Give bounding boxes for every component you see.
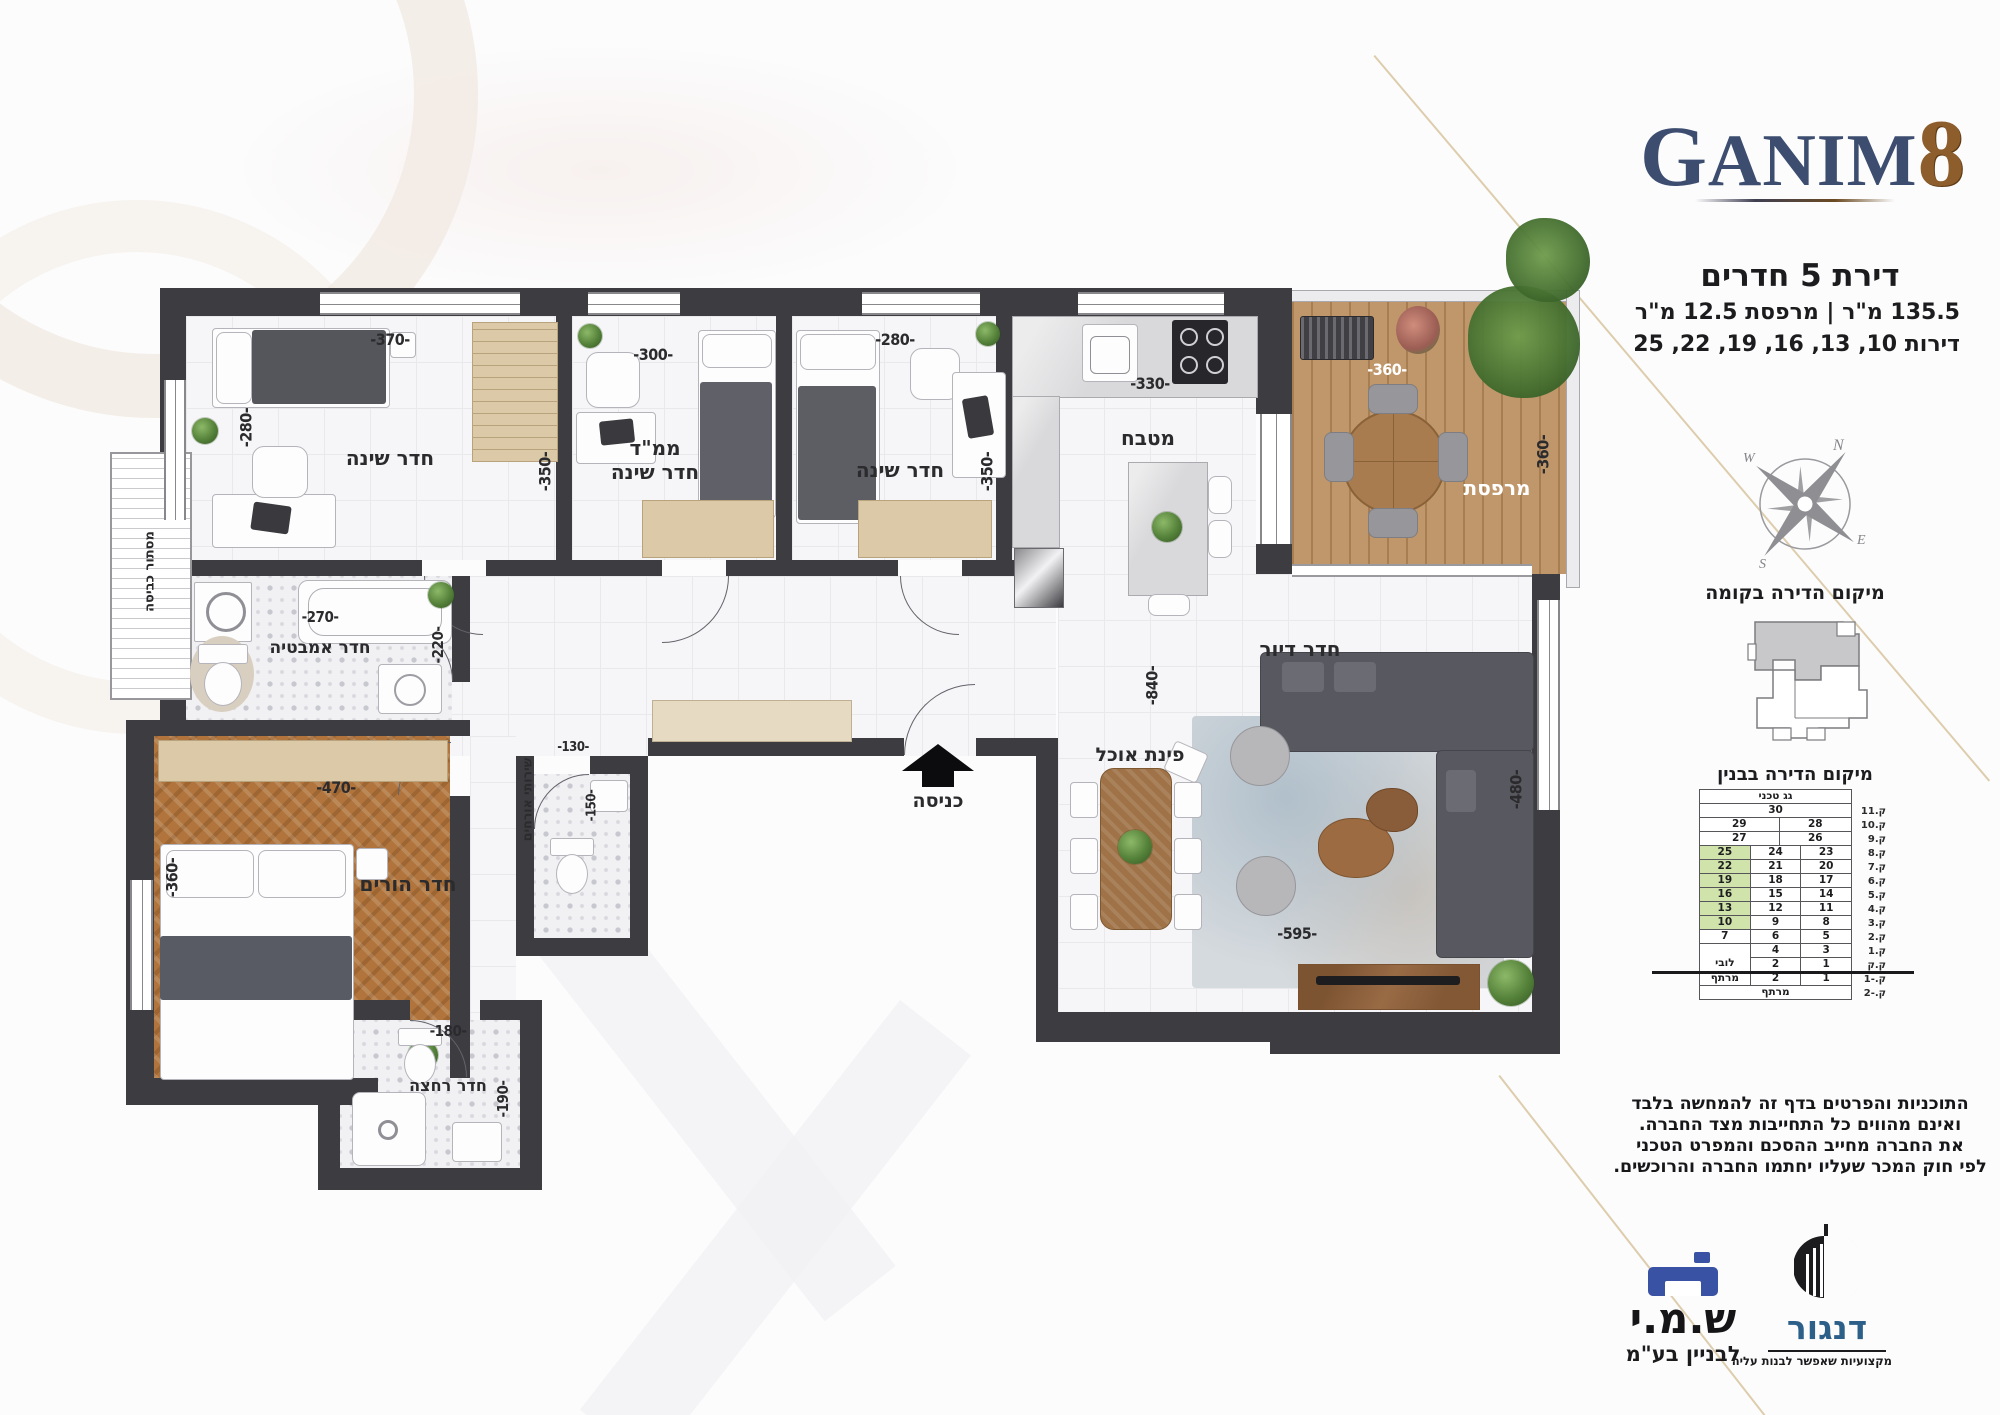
window-balcony-door <box>1260 414 1292 544</box>
building-table-cell: 11 <box>1800 901 1852 916</box>
armchair <box>1236 856 1296 916</box>
armchair <box>1230 726 1290 786</box>
window <box>164 380 186 520</box>
building-table-row: 252423ק.8 <box>1700 846 1890 860</box>
dangor-tagline: מקצועיות שאפשר לבנות עליה <box>1762 1354 1892 1368</box>
compass-rose-icon: N W E S <box>1733 432 1877 576</box>
building-table-cell: 15 <box>1750 887 1802 902</box>
wall <box>126 720 470 736</box>
floor-diagram-icon <box>1733 608 1883 748</box>
building-table-cells: מרתף21 <box>1700 972 1852 986</box>
building-table-cell: 3 <box>1800 943 1852 958</box>
logo-underline <box>1695 199 1895 202</box>
dim-kitchen-w: -330- <box>1105 374 1195 393</box>
logo-number: 8 <box>1917 100 1965 206</box>
toilet-bowl <box>204 662 242 706</box>
building-table-floor-label: ק.1 <box>1852 944 1892 958</box>
building-table-cell: 16 <box>1699 887 1751 902</box>
ground-line <box>1652 971 1914 974</box>
building-table-floor-label: ק.ק <box>1852 958 1892 972</box>
building-table-cell: 30 <box>1699 803 1852 818</box>
building-table-rows: גג טכני30ק.112928ק.102726ק.9252423ק.8222… <box>1700 790 1890 1000</box>
wardrobe <box>642 500 774 558</box>
wall <box>556 316 572 560</box>
building-table-cell: 23 <box>1800 845 1852 860</box>
building-table-cell: 14 <box>1800 887 1852 902</box>
building-table-row: 765ק.2 <box>1700 930 1890 944</box>
building-table-cells: 765 <box>1700 930 1852 944</box>
building-table-row: מרתף21ק.-1 <box>1700 972 1890 986</box>
dining-chair <box>1174 782 1202 818</box>
dim-living-e: -480- <box>1507 750 1526 830</box>
building-table-cells: 222120 <box>1700 860 1852 874</box>
dim-master-h: -360- <box>163 838 182 918</box>
building-table-row: לובי21ק.ק <box>1700 958 1890 972</box>
building-table-cell: 25 <box>1699 845 1751 860</box>
building-table-cells: 191817 <box>1700 874 1852 888</box>
dim-master-w: -470- <box>291 778 381 797</box>
wall <box>1036 1012 1270 1042</box>
entrance-arrow-stem <box>922 771 954 787</box>
blanket <box>160 936 352 1000</box>
dim-mamad-w: -300- <box>608 345 698 364</box>
building-table-floor-label: ק.10 <box>1852 818 1892 832</box>
stool <box>1208 520 1232 558</box>
project-logo: GANIM8 <box>1640 98 1960 216</box>
building-table-row: מרתףק.-2 <box>1700 986 1890 1000</box>
dim-living-s: -595- <box>1252 924 1342 943</box>
toilet <box>198 644 248 664</box>
balcony-sliding-door <box>1292 564 1532 577</box>
building-table-row: גג טכני <box>1700 790 1890 804</box>
building-location-title: מיקום הדירה בבנין <box>1690 764 1900 785</box>
building-table-cell: 7 <box>1699 929 1751 944</box>
entrance-arrow-icon <box>902 744 974 771</box>
entrance-label: כניסה <box>888 790 988 812</box>
building-table: גג טכני30ק.112928ק.102726ק.9252423ק.8222… <box>1700 790 1890 1000</box>
wardrobe <box>858 500 992 558</box>
plant <box>192 418 218 444</box>
room-label-guest-wc: שירותי אורחים <box>520 740 535 860</box>
dim-mamad-h: -350- <box>536 432 555 512</box>
window <box>130 880 153 1010</box>
compass-e: E <box>1856 533 1866 548</box>
building-table-cell <box>1699 943 1751 958</box>
wall <box>976 738 1058 756</box>
shami-logo: ש.מ.י לבניין בע"מ <box>1608 1252 1758 1366</box>
building-table-row: 2726ק.9 <box>1700 832 1890 846</box>
dim-bathroom-h: -220- <box>429 605 447 685</box>
building-table-cells: מרתף <box>1700 986 1852 1000</box>
building-table-cell: מרתף <box>1699 985 1852 1000</box>
burner <box>1180 356 1198 374</box>
pillow <box>258 850 346 898</box>
floor-location-diagram <box>1733 608 1883 748</box>
window <box>1537 600 1560 810</box>
balcony-chair <box>1368 508 1418 538</box>
building-table-cell: 22 <box>1699 859 1751 874</box>
dangor-logo: דנגור מקצועיות שאפשר לבנות עליה <box>1762 1224 1892 1368</box>
shower-drain <box>378 1120 398 1140</box>
compass-w: W <box>1743 451 1756 466</box>
wall <box>1036 756 1058 1012</box>
dim-shower-h: -190- <box>494 1059 512 1139</box>
building-table-cell: 18 <box>1750 873 1802 888</box>
room-label-bathroom: חדר אמבטיה <box>255 638 385 658</box>
hall-cabinet <box>652 700 852 742</box>
burner <box>1180 328 1198 346</box>
room-label-dining: פינת אוכל <box>1080 744 1200 766</box>
building-table-row: 131211ק.4 <box>1700 902 1890 916</box>
desk-chair <box>252 446 308 498</box>
dim-bedroom1-h: -280- <box>237 388 256 468</box>
compass: N W E S <box>1733 432 1877 576</box>
building-table-floor-label: ק.-1 <box>1852 972 1892 986</box>
pillow <box>702 334 772 368</box>
tv-console <box>1298 964 1480 1010</box>
wall <box>520 1000 542 1190</box>
building-table-cells: 252423 <box>1700 846 1852 860</box>
dim-bedroom2-w: -280- <box>850 330 940 349</box>
building-table-row: 30ק.11 <box>1700 804 1890 818</box>
room-label-shower: חדר רחצה <box>388 1076 508 1095</box>
wall <box>186 560 422 576</box>
disclaimer-line: התוכניות והפרטים בדף זה להמחשה בלבד <box>1580 1094 2000 1115</box>
plant <box>1488 960 1534 1006</box>
window <box>862 292 980 315</box>
building-table-cell: גג טכני <box>1699 789 1852 804</box>
building-table-cell: 12 <box>1750 901 1802 916</box>
kitchen-counter <box>1012 396 1060 548</box>
building-table-cell: 27 <box>1699 831 1780 846</box>
dim-bedroom1-w: -370- <box>345 330 435 349</box>
building-table-row: 222120ק.7 <box>1700 860 1890 874</box>
building-table-cells: 2726 <box>1700 832 1852 846</box>
burner <box>1206 356 1224 374</box>
dim-shower-w: -180- <box>403 1022 493 1040</box>
wall <box>480 1000 520 1020</box>
window <box>1078 292 1224 315</box>
room-label-living: חדר דיור <box>1240 637 1360 661</box>
sofa-pillow <box>1282 662 1324 692</box>
building-table-cell: לובי <box>1699 957 1751 972</box>
building-table-cells: 161514 <box>1700 888 1852 902</box>
building-table-row: 191817ק.6 <box>1700 874 1890 888</box>
dim-guest-wc-w: -130- <box>533 740 613 755</box>
building-table-row: 43ק.1 <box>1700 944 1890 958</box>
building-table-cells: גג טכני <box>1700 790 1852 804</box>
palm-plant <box>1468 286 1580 398</box>
dim-guest-wc-h: -150- <box>585 771 600 841</box>
wall <box>516 938 648 956</box>
building-table-cell: 13 <box>1699 901 1751 916</box>
wall <box>630 756 648 956</box>
floor-passage <box>470 736 516 1022</box>
building-table-floor-label: ק.3 <box>1852 916 1892 930</box>
building-table-cells: 2928 <box>1700 818 1852 832</box>
plant <box>578 324 602 348</box>
dim-bathroom-w: -270- <box>275 608 365 626</box>
window <box>320 292 520 315</box>
building-table-floor-label: ק.7 <box>1852 860 1892 874</box>
dim-bedroom2-h: -350- <box>978 432 997 512</box>
logo-rest: ANIM <box>1708 120 1918 202</box>
building-table-cells: 30 <box>1700 804 1852 818</box>
building-table-floor-label: ק.8 <box>1852 846 1892 860</box>
dining-chair <box>1174 838 1202 874</box>
logo-initial: G <box>1640 108 1708 204</box>
building-table-cell: 26 <box>1779 831 1852 846</box>
sofa-pillow <box>1446 770 1476 812</box>
building-table-cell: 17 <box>1800 873 1852 888</box>
shami-icon-block <box>1694 1252 1710 1263</box>
washing-machine-drum <box>206 592 246 632</box>
disclaimer-line: את החברה מחייב ההסכם והמפרט הטכני <box>1580 1136 2000 1157</box>
disclaimer-line: לפי חוק המכר שעליו יחתמו החברה והרוכשים. <box>1580 1157 2000 1178</box>
sink-bowl <box>1090 336 1130 374</box>
building-table-row: 2928ק.10 <box>1700 818 1890 832</box>
building-table-cell: 29 <box>1699 817 1780 832</box>
wall <box>776 316 792 560</box>
plant <box>1152 512 1182 542</box>
balcony-table <box>1342 410 1446 514</box>
building-table-floor-label <box>1852 790 1892 804</box>
building-table-floor-label: ק.4 <box>1852 902 1892 916</box>
wall <box>1270 1012 1560 1054</box>
logo-text: GANIM <box>1640 120 1917 202</box>
room-label-bedroom1: חדר שינה <box>330 446 450 470</box>
room-label-bedroom2: חדר שינה <box>840 458 960 482</box>
wall <box>1256 544 1292 574</box>
stool <box>1208 476 1232 514</box>
coffee-table <box>1366 788 1418 832</box>
wall <box>726 560 898 576</box>
building-table-floor-label: ק.9 <box>1852 832 1892 846</box>
building-table-cells: 43 <box>1700 944 1852 958</box>
shami-name: ש.מ.י <box>1608 1296 1758 1342</box>
toilet-bowl <box>556 854 588 894</box>
wall <box>1256 288 1292 414</box>
laptop <box>250 501 292 534</box>
room-label-master: חדר הורים <box>348 872 468 896</box>
burner <box>1206 328 1224 346</box>
plant <box>976 322 1000 346</box>
building-table-cells: 1098 <box>1700 916 1852 930</box>
dim-balcony-w: -360- <box>1342 360 1432 379</box>
wall <box>126 1078 378 1105</box>
floor-location-title: מיקום הדירה בקומה <box>1690 582 1900 604</box>
tv <box>1316 976 1460 985</box>
disclaimer-line: ואינם מהווים כל התחייבות מצד החברה. <box>1580 1115 2000 1136</box>
building-table-cell: 20 <box>1800 859 1852 874</box>
building-table-floor-label: ק.5 <box>1852 888 1892 902</box>
wall <box>486 560 662 576</box>
dining-chair <box>1070 838 1098 874</box>
dangor-name: דנגור <box>1762 1310 1892 1346</box>
sink-basin <box>394 674 426 706</box>
dining-chair <box>1174 894 1202 930</box>
flower-plant <box>1396 306 1440 354</box>
balcony-chair <box>1324 432 1354 482</box>
wall <box>318 1168 542 1190</box>
disclaimer: התוכניות והפרטים בדף זה להמחשה בלבד ואינ… <box>1580 1094 2000 1178</box>
building-table-floor-label: ק.2 <box>1852 930 1892 944</box>
shami-icon-notch <box>1665 1281 1701 1296</box>
stool <box>1148 594 1190 616</box>
building-table-cell: 9 <box>1750 915 1802 930</box>
building-table-cell: 28 <box>1779 817 1852 832</box>
dim-balcony-h: -360- <box>1534 415 1553 495</box>
compass-n: N <box>1832 437 1845 454</box>
bbq-grill <box>1300 316 1374 360</box>
plant <box>1118 830 1152 864</box>
room-label-mamad-1: ממ"ד <box>595 436 715 460</box>
dangor-icon <box>1794 1224 1860 1306</box>
sofa-pillow <box>1334 662 1376 692</box>
room-label-kitchen: מטבח <box>1088 426 1208 450</box>
shami-icon <box>1648 1252 1718 1296</box>
building-table-cells: 131211 <box>1700 902 1852 916</box>
dining-chair <box>1070 782 1098 818</box>
refrigerator <box>1014 548 1064 608</box>
building-table-cell: 1 <box>1800 957 1852 972</box>
building-table-cell: 19 <box>1699 873 1751 888</box>
page: חדר שינה -370- -280- ממ"ד חדר שינה -300-… <box>0 0 2000 1415</box>
building-table-floor-label: ק.6 <box>1852 874 1892 888</box>
balcony-chair <box>1438 432 1468 482</box>
balcony-chair <box>1368 384 1418 414</box>
building-table-cell: 5 <box>1800 929 1852 944</box>
apartment-units: דירות 10, 13, 16, 19, 22, 25 <box>1640 332 1960 357</box>
wardrobe <box>158 740 448 782</box>
building-table-cell: 10 <box>1699 915 1751 930</box>
building-table-cell: 4 <box>1750 943 1802 958</box>
building-table-row: 161514ק.5 <box>1700 888 1890 902</box>
decor-blush <box>220 40 980 300</box>
apartment-area: 135.5 מ"ר | מרפסת 12.5 מ"ר <box>1640 300 1960 325</box>
palm-plant <box>1506 218 1590 302</box>
building-table-cell: 6 <box>1750 929 1802 944</box>
dining-chair <box>1070 894 1098 930</box>
apartment-title: דירת 5 חדרים <box>1640 258 1960 294</box>
window <box>588 292 680 315</box>
building-table-cells: לובי21 <box>1700 958 1852 972</box>
building-table-row: 1098ק.3 <box>1700 916 1890 930</box>
room-label-mamad-2: חדר שינה <box>595 460 715 484</box>
building-table-floor-label: ק.-2 <box>1852 986 1892 1000</box>
room-label-laundry: מסתור כביסה <box>143 512 158 632</box>
building-table-cell: 24 <box>1750 845 1802 860</box>
building-table-floor-label: ק.11 <box>1852 804 1892 818</box>
building-table-cell: 2 <box>1750 957 1802 972</box>
dim-living-depth: -840- <box>1143 646 1162 726</box>
dangor-divider <box>1768 1350 1886 1352</box>
compass-s: S <box>1759 557 1766 572</box>
building-table-cell: 8 <box>1800 915 1852 930</box>
building-table-cell: 21 <box>1750 859 1802 874</box>
